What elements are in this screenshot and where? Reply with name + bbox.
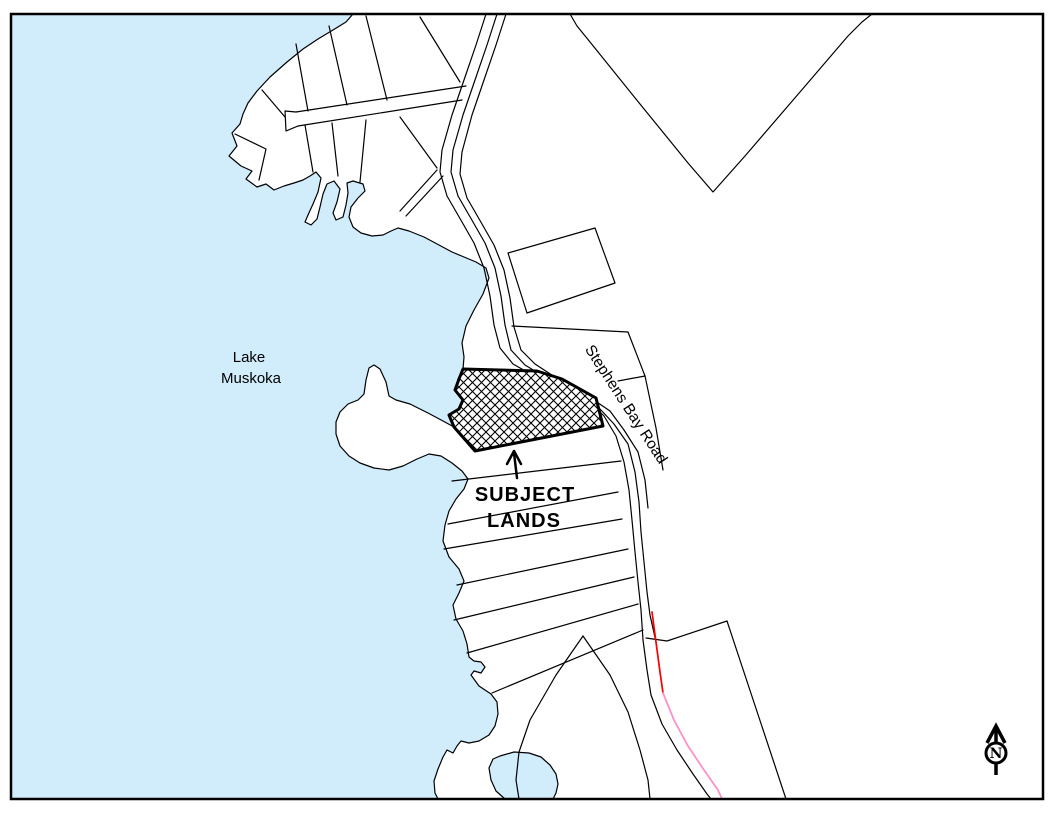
north-arrow-letter: N <box>990 746 1003 762</box>
subject-lands-label-line1: SUBJECT <box>475 484 575 506</box>
lake-label-line1: Lake <box>233 349 266 366</box>
location-map-page: Lake Muskoka Stephens Bay Road SUBJECT L… <box>0 0 1056 816</box>
subject-lands-label-line2: LANDS <box>487 510 561 532</box>
location-map: Lake Muskoka Stephens Bay Road SUBJECT L… <box>0 0 1056 816</box>
lake-label-line2: Muskoka <box>221 370 282 387</box>
